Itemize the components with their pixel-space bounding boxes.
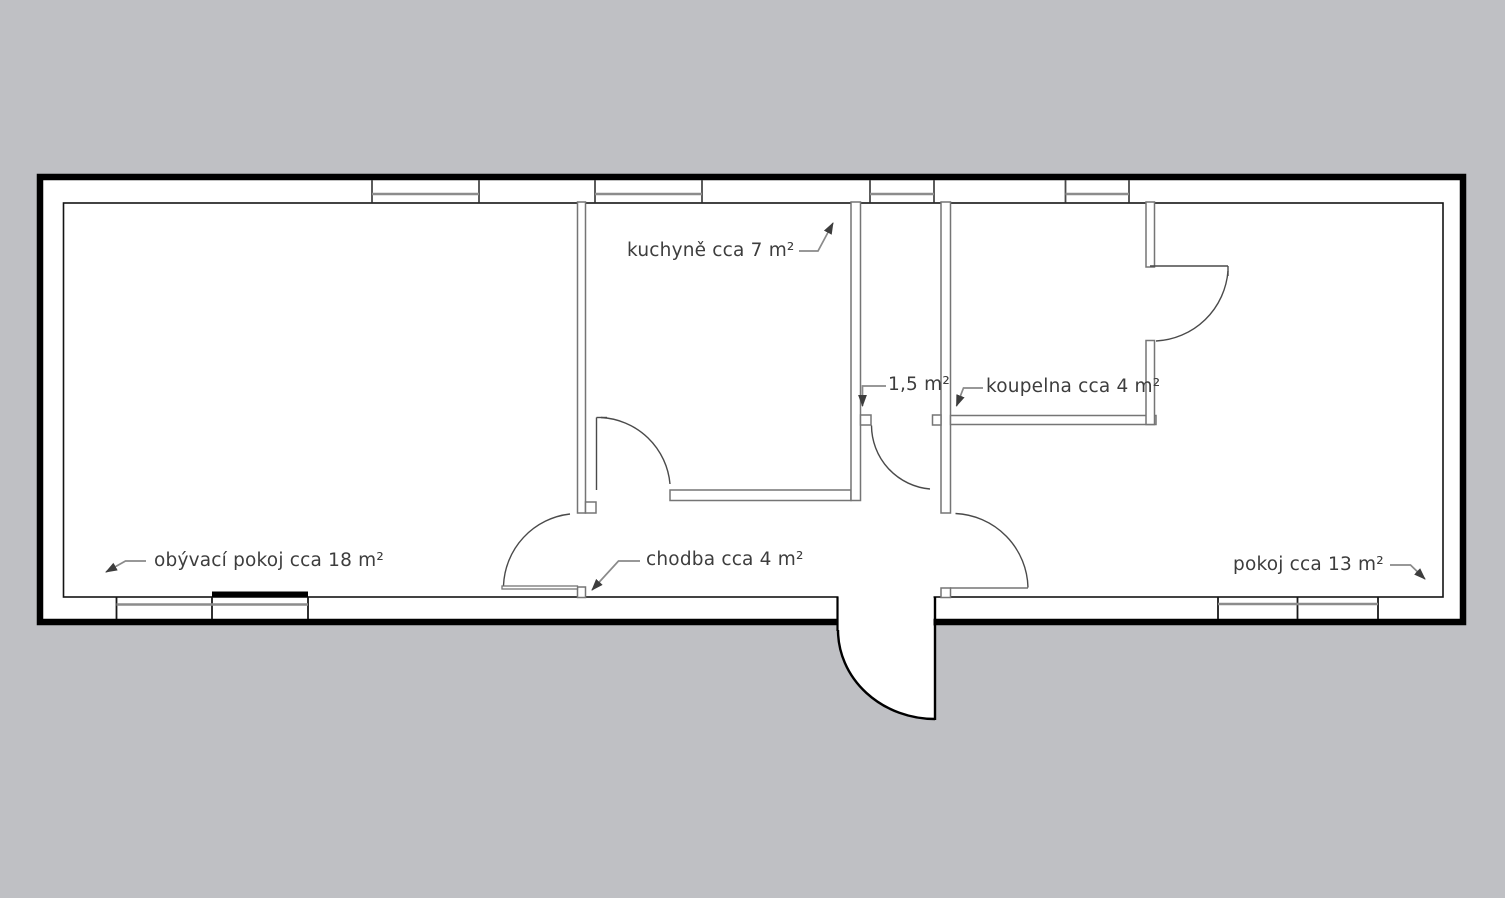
entrance-door [838, 595, 936, 721]
floor-plan-drawing [0, 0, 1505, 898]
label-hallway: chodba cca 4 m² [646, 549, 804, 570]
wall-bathroom-bottom [951, 416, 1157, 425]
wall-kitchen-wc [851, 202, 861, 501]
floor-plan-canvas: obývací pokoj cca 18 m² kuchyně cca 7 m²… [0, 0, 1505, 898]
wall-living-kitchen [578, 202, 586, 513]
living-door-leaf [502, 586, 578, 589]
wall-jamb-living-door-top [586, 502, 597, 513]
wall-wc-bathroom [941, 202, 951, 513]
label-wc: 1,5 m² [888, 374, 950, 395]
wall-jamb-wc-door-right [933, 415, 942, 425]
label-living-room: obývací pokoj cca 18 m² [154, 550, 384, 571]
wall-jamb-living-door-bottom [578, 587, 586, 598]
wall-bathroom-bedroom-upper [1146, 202, 1155, 267]
balcony-door-marker [212, 592, 308, 598]
wall-kitchen-hallway [670, 490, 851, 501]
label-bedroom: pokoj cca 13 m² [1233, 554, 1384, 575]
wall-jamb-bedroom-door-bottom [941, 588, 951, 598]
label-kitchen: kuchyně cca 7 m² [627, 240, 795, 261]
label-bathroom: koupelna cca 4 m² [986, 376, 1160, 397]
wall-jamb-wc-door-left [861, 415, 872, 425]
